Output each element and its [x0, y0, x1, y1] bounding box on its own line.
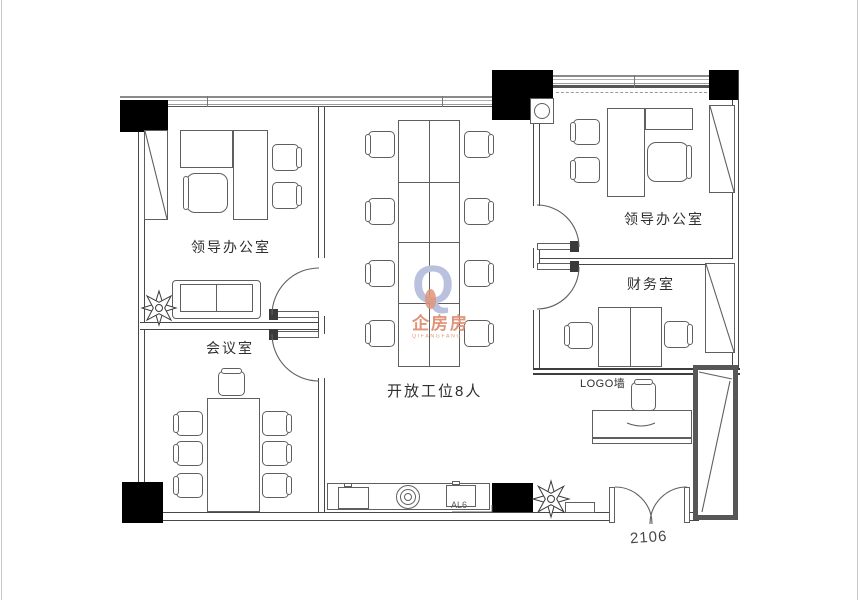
- chair: [664, 321, 690, 348]
- column: [120, 100, 168, 132]
- wall-partition-left: [140, 322, 321, 330]
- duct-shaft: [693, 365, 738, 520]
- desk-return: [645, 108, 693, 130]
- executive-chair: [186, 173, 228, 213]
- wall-step: [565, 502, 595, 513]
- entrance-door-leaf-right: [684, 487, 690, 523]
- watermark-brand: 企房房: [412, 309, 471, 334]
- window-band-left: [120, 96, 497, 107]
- door-hinge: [570, 261, 579, 272]
- conference-table: [207, 398, 260, 512]
- beam-dashed-line: [556, 92, 712, 93]
- guest-chair: [272, 144, 299, 171]
- reception-chair: [631, 382, 656, 411]
- desk-divider: [630, 307, 631, 367]
- door-hinge: [570, 241, 579, 252]
- entrance-arc-left: [615, 487, 652, 524]
- label-unit-number: 2106: [629, 528, 667, 548]
- door-leaf-leader-left: [272, 311, 319, 318]
- desk-divider: [398, 242, 460, 243]
- page-edge-left: [1, 0, 2, 600]
- executive-chair: [647, 142, 689, 182]
- label-finance-room: 财务室: [627, 274, 675, 294]
- wall-center-left-c: [318, 378, 325, 512]
- chair: [368, 131, 395, 158]
- door-hinge: [269, 309, 278, 320]
- desk: [233, 130, 268, 220]
- desk-divider: [398, 182, 460, 183]
- desk-return: [180, 130, 233, 168]
- appliance: [338, 487, 369, 509]
- chair: [262, 473, 289, 498]
- guest-chair: [573, 157, 600, 183]
- guest-chair: [272, 182, 299, 209]
- wall-bottom: [138, 512, 612, 521]
- chair: [464, 131, 491, 158]
- cabinet: [144, 130, 168, 220]
- wall-center-left-b: [318, 316, 325, 334]
- cabinet: [705, 263, 735, 353]
- wall-center-left-a: [318, 107, 325, 258]
- window-mullion: [442, 96, 443, 107]
- watermark: Q 企房房 QIFANGFANG: [412, 258, 471, 340]
- chair: [464, 198, 491, 225]
- guest-chair: [573, 119, 600, 145]
- cabinet: [709, 105, 735, 193]
- door-hinge: [269, 329, 278, 340]
- water-dispenser-center: [404, 493, 412, 501]
- door-leaf-meeting: [272, 331, 319, 338]
- label-leader-office-right: 领导办公室: [624, 209, 704, 229]
- watermark-logo-flame: [425, 289, 436, 309]
- chair: [176, 473, 203, 498]
- reception-desk-front: [592, 438, 692, 444]
- watermark-pinyin: QIFANGFANG: [412, 334, 462, 339]
- chair: [262, 441, 289, 466]
- window-mullion: [207, 96, 208, 107]
- door-arc-leader-left: [272, 268, 319, 315]
- door-arc-meeting: [272, 334, 319, 381]
- chair: [176, 411, 203, 436]
- reception-desk: [592, 410, 692, 438]
- floor-plan: 领导办公室 会议室 开放工位8人 领导办公室 财务室 LOGO墙 AL6 210…: [0, 0, 860, 600]
- chair: [368, 320, 395, 347]
- chair: [567, 322, 593, 349]
- sofa-cushion-divider: [216, 284, 217, 312]
- label-logo-wall: LOGO墙: [580, 375, 625, 391]
- equipment-circle: [534, 103, 550, 119]
- label-meeting-room: 会议室: [206, 338, 254, 358]
- chair: [176, 441, 203, 466]
- column: [492, 483, 533, 512]
- wall-center-right-a: [533, 118, 540, 206]
- label-leader-office-left: 领导办公室: [191, 237, 271, 257]
- wall-center-right-c: [533, 310, 540, 368]
- chair: [368, 198, 395, 225]
- entrance-door-leaf-left: [609, 487, 615, 523]
- entrance-arc-right: [650, 487, 687, 524]
- chair: [262, 411, 289, 436]
- column: [709, 70, 738, 100]
- page-edge-right: [857, 0, 858, 600]
- door-arc-finance: [537, 267, 579, 309]
- chair: [368, 260, 395, 287]
- label-open-area: 开放工位8人: [387, 380, 482, 401]
- watermark-logo-q: Q: [412, 258, 471, 312]
- chair: [218, 371, 245, 396]
- window-mullion: [634, 75, 635, 88]
- label-al6: AL6: [451, 500, 467, 510]
- column: [122, 482, 163, 523]
- desk: [607, 108, 645, 197]
